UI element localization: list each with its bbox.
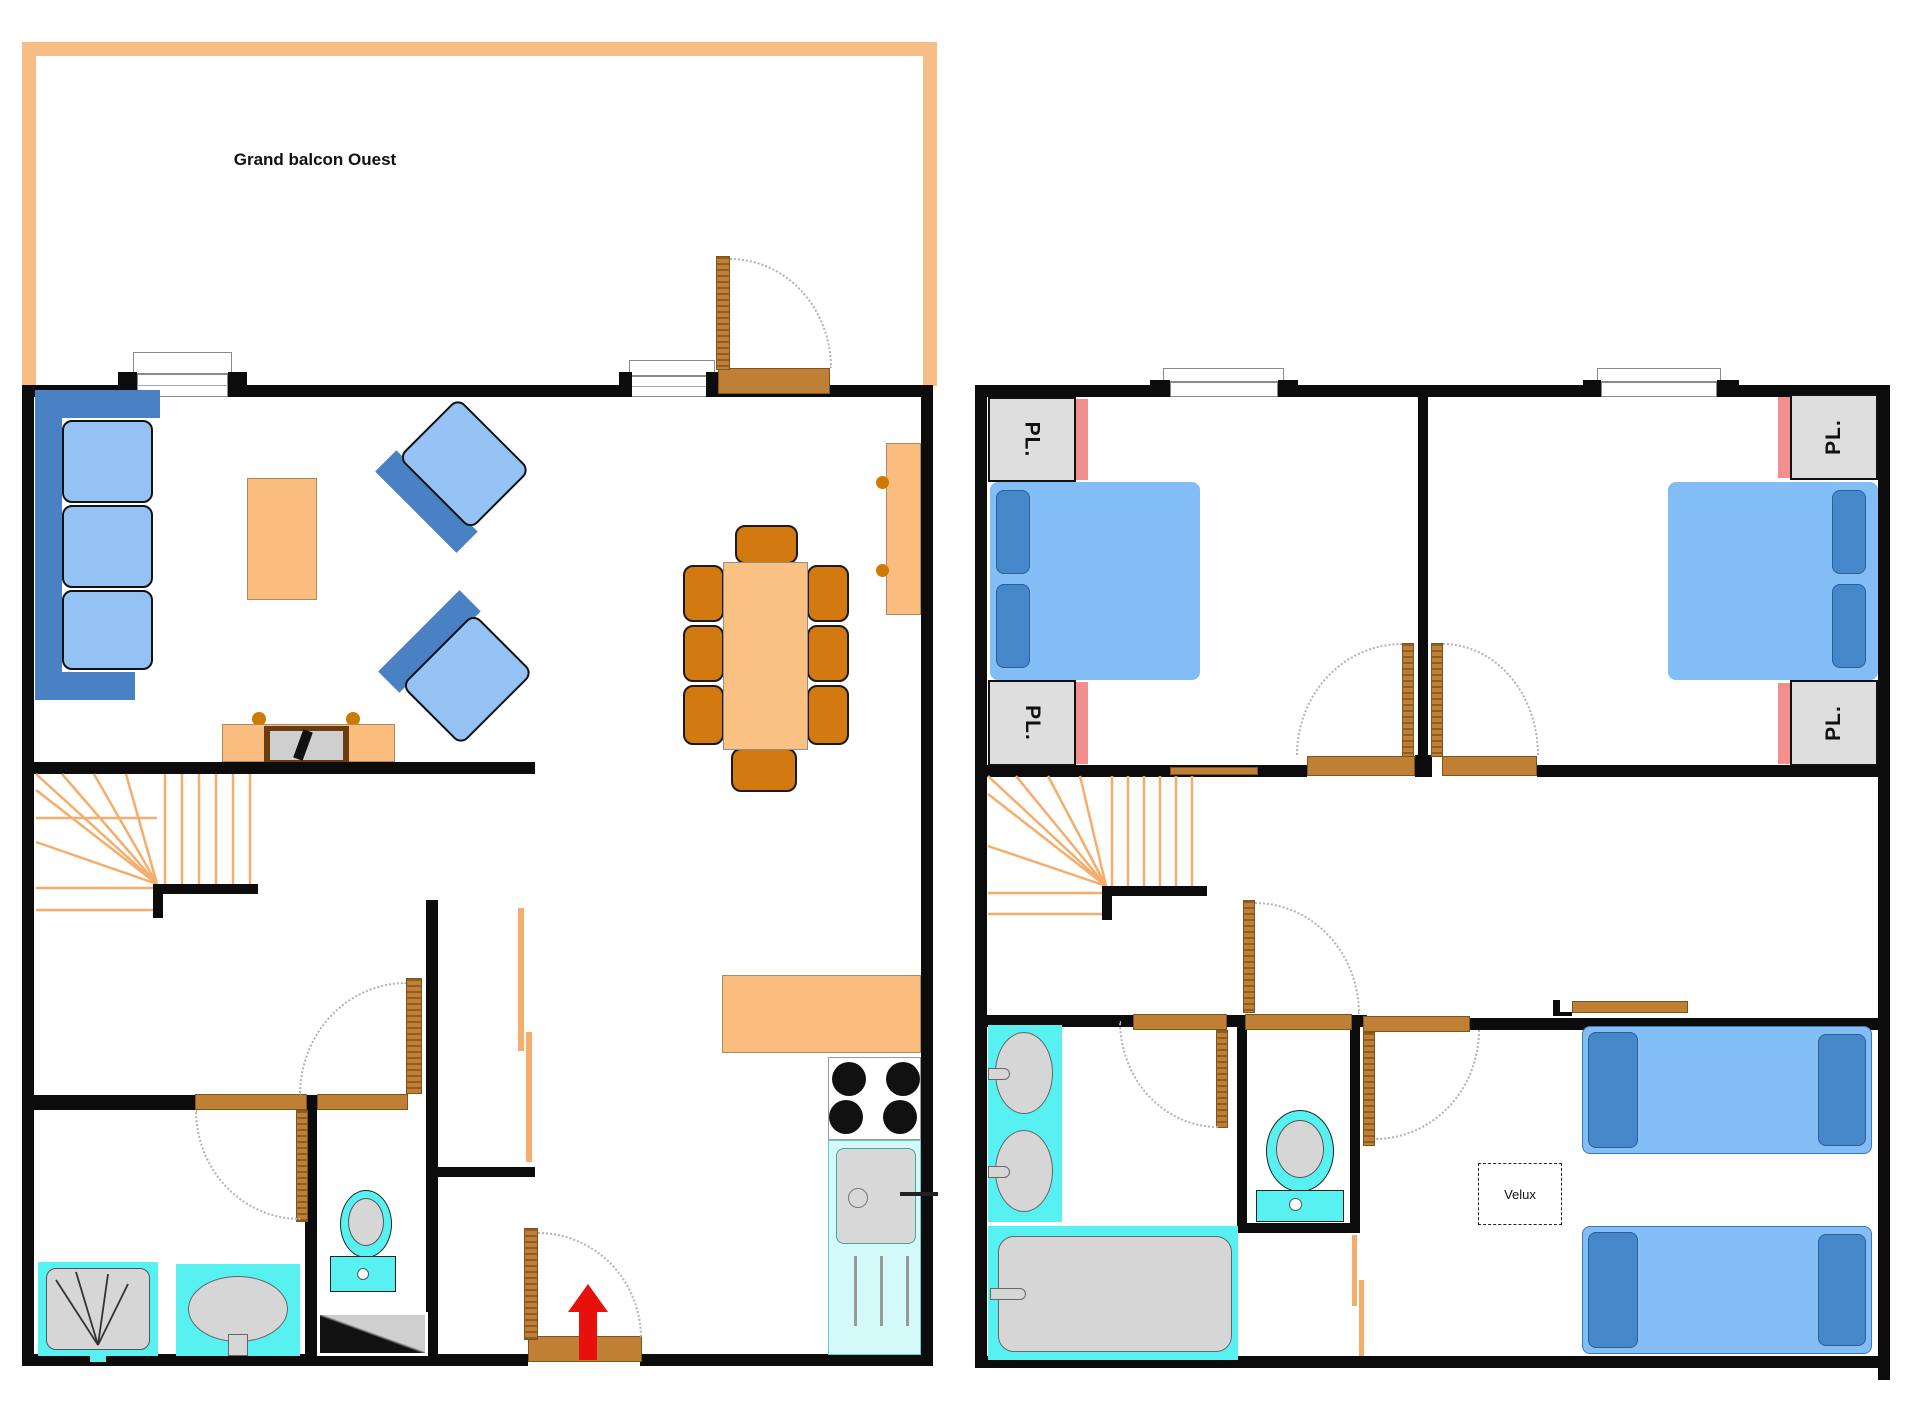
window bbox=[1170, 382, 1278, 397]
wall-bedrooms-bottom bbox=[1537, 765, 1890, 777]
dressing-closet-front bbox=[1572, 1001, 1688, 1013]
dining-chair bbox=[683, 565, 724, 622]
bedroom1-door-swing-arc bbox=[1296, 643, 1402, 755]
dressing-closet-corner bbox=[1553, 1012, 1572, 1016]
wc-door-lintel bbox=[317, 1094, 408, 1110]
bathtub bbox=[998, 1236, 1232, 1352]
bed-end-block bbox=[1818, 1034, 1866, 1146]
drainer-line bbox=[880, 1256, 883, 1326]
sink-pedestal bbox=[228, 1334, 248, 1356]
stair-edge bbox=[1102, 886, 1207, 896]
window-post bbox=[1583, 380, 1601, 397]
closet-door-strip bbox=[1778, 683, 1790, 764]
wc-door-lintel bbox=[1245, 1014, 1352, 1030]
armchair bbox=[378, 590, 541, 753]
wall-right bbox=[1878, 385, 1890, 1380]
stove-burner bbox=[883, 1100, 917, 1134]
wall-wc-bottom bbox=[1237, 1223, 1360, 1233]
wall-top bbox=[975, 385, 1890, 397]
bedroom2-door-swing-arc bbox=[1443, 643, 1539, 755]
dining-chair bbox=[807, 685, 849, 745]
bedroom2-door-threshold bbox=[1442, 756, 1537, 776]
window-sill bbox=[629, 360, 715, 376]
sofa-frame-bottom bbox=[35, 672, 135, 700]
dining-chair bbox=[683, 685, 724, 745]
drainer-line bbox=[906, 1256, 909, 1326]
window-sill bbox=[133, 352, 232, 374]
dining-table bbox=[723, 562, 808, 750]
window-glass-line bbox=[631, 386, 715, 387]
balcony-door-swing-arc bbox=[730, 258, 832, 368]
under-stair-storage bbox=[317, 1312, 428, 1356]
closet-partition-line bbox=[1352, 1235, 1357, 1306]
closet-label: PL. bbox=[1793, 395, 1875, 479]
sofa-frame-top bbox=[35, 390, 160, 418]
stair-edge bbox=[1102, 886, 1112, 920]
balcony-door-leaf bbox=[716, 256, 730, 370]
bedroom2-door-leaf bbox=[1431, 643, 1443, 757]
sofa-cushion bbox=[62, 420, 153, 503]
staircase bbox=[986, 774, 1210, 922]
floorplan-canvas: Grand balcon Ouest bbox=[0, 0, 1920, 1413]
wall-wc-left bbox=[1237, 1027, 1247, 1233]
bathroom-door-swing-arc bbox=[1119, 1021, 1218, 1128]
balcony-border-top bbox=[22, 42, 937, 56]
balcony-border-left bbox=[22, 42, 36, 386]
kitchen-faucet bbox=[900, 1192, 938, 1196]
armchair bbox=[375, 390, 538, 553]
bedroom3-door-leaf bbox=[1363, 1032, 1375, 1146]
wall-door-post bbox=[1415, 755, 1432, 777]
closet-label: PL. bbox=[1793, 681, 1875, 765]
wc-door-leaf bbox=[1243, 900, 1255, 1013]
entrance-arrow-shaft bbox=[579, 1310, 597, 1360]
dining-chair bbox=[683, 625, 724, 682]
bedroom1-door-threshold bbox=[1307, 756, 1415, 776]
wall-bottom-right bbox=[640, 1354, 933, 1366]
closet-label: PL. bbox=[992, 398, 1073, 482]
bed-pillow bbox=[1832, 584, 1866, 668]
toilet-flush-button bbox=[1289, 1198, 1302, 1211]
dining-chair bbox=[731, 748, 797, 792]
window bbox=[1601, 382, 1717, 397]
wall-sideboard bbox=[886, 443, 921, 615]
velux-skylight: Velux bbox=[1478, 1163, 1562, 1225]
wall-bedroom-divider bbox=[1418, 397, 1428, 757]
bathroom-door-lintel bbox=[195, 1094, 307, 1110]
wc-door-swing-arc bbox=[1255, 902, 1360, 1014]
balcony-border-right bbox=[923, 42, 937, 386]
sofa-cushion bbox=[62, 590, 153, 670]
bed-end-block bbox=[1588, 1032, 1638, 1148]
wall-hall-stub bbox=[438, 1167, 535, 1177]
entrance-arrow-head bbox=[568, 1284, 608, 1312]
window-post bbox=[706, 372, 718, 397]
toilet-flush-button bbox=[357, 1268, 369, 1280]
balcony-label: Grand balcon Ouest bbox=[200, 150, 430, 174]
closet-door-strip bbox=[1778, 397, 1790, 478]
bed-pillow bbox=[996, 490, 1030, 574]
closet-partition-line bbox=[1359, 1280, 1364, 1356]
bedroom1-door-leaf bbox=[1402, 643, 1414, 757]
window-post bbox=[1717, 380, 1739, 397]
bed-pillow bbox=[996, 584, 1030, 668]
sideboard-knob bbox=[876, 564, 889, 577]
window-post bbox=[619, 372, 632, 397]
shower-drain-stub bbox=[90, 1350, 106, 1362]
dining-chair bbox=[807, 625, 849, 682]
closet-pl: PL. bbox=[1790, 394, 1878, 480]
window-sill bbox=[1163, 368, 1284, 382]
coffee-table bbox=[247, 478, 317, 600]
stove-burner bbox=[886, 1062, 920, 1096]
bathtub-faucet bbox=[990, 1288, 1026, 1300]
sink-faucet bbox=[988, 1166, 1010, 1178]
window-post bbox=[1278, 380, 1298, 397]
closet-door-strip bbox=[1076, 399, 1088, 480]
sofa bbox=[35, 390, 168, 700]
closet-pl: PL. bbox=[988, 680, 1076, 766]
sofa-cushion bbox=[62, 505, 153, 588]
wall-wc-right bbox=[1350, 1027, 1360, 1228]
closet-partition-line bbox=[518, 908, 524, 1051]
bathroom-door-swing-arc bbox=[195, 1110, 300, 1220]
wall-left bbox=[22, 385, 34, 1366]
bed-end-block bbox=[1588, 1232, 1638, 1348]
dining-chair bbox=[807, 565, 849, 622]
bed-pillow bbox=[1832, 490, 1866, 574]
closet-door-strip bbox=[1076, 682, 1088, 764]
window-post bbox=[228, 372, 247, 397]
kitchen-counter bbox=[722, 975, 921, 1053]
sofa-frame-left bbox=[35, 390, 62, 700]
sink-bowl bbox=[188, 1276, 288, 1342]
window-sill bbox=[1597, 368, 1721, 382]
wc-door-swing-arc bbox=[299, 982, 406, 1095]
closet-pl: PL. bbox=[1790, 680, 1878, 766]
entrance-door-leaf bbox=[524, 1228, 538, 1340]
stair-edge bbox=[153, 884, 258, 894]
wall-bathroom-top bbox=[22, 1095, 195, 1110]
closet-pl: PL. bbox=[988, 397, 1076, 482]
wall-hall-vertical bbox=[426, 900, 438, 1366]
wc-door-leaf bbox=[406, 978, 422, 1094]
closet-label: PL. bbox=[991, 681, 1073, 765]
wall-right bbox=[921, 385, 933, 1366]
sink-drain bbox=[848, 1188, 868, 1208]
sink-faucet bbox=[988, 1068, 1010, 1080]
velux-label: Velux bbox=[1504, 1187, 1536, 1202]
toilet-bowl-inner bbox=[1276, 1120, 1324, 1178]
stair-edge bbox=[153, 884, 163, 918]
stove-burner bbox=[832, 1062, 866, 1096]
staircase bbox=[34, 772, 260, 920]
window-post bbox=[1150, 380, 1170, 397]
window-glass-line bbox=[137, 385, 228, 386]
toilet-bowl-inner bbox=[348, 1198, 384, 1246]
bed-end-block bbox=[1818, 1234, 1866, 1346]
drainer-line bbox=[854, 1256, 857, 1326]
dining-chair bbox=[735, 525, 798, 564]
balcony-door-threshold bbox=[718, 368, 830, 394]
wall-hall-bottom bbox=[1225, 1015, 1247, 1027]
bedroom3-door-swing-arc bbox=[1375, 1030, 1480, 1140]
closet-partition-line bbox=[526, 1032, 532, 1162]
sideboard-knob bbox=[876, 476, 889, 489]
stove-burner bbox=[829, 1100, 863, 1134]
shower-drain-lines bbox=[38, 1262, 158, 1356]
